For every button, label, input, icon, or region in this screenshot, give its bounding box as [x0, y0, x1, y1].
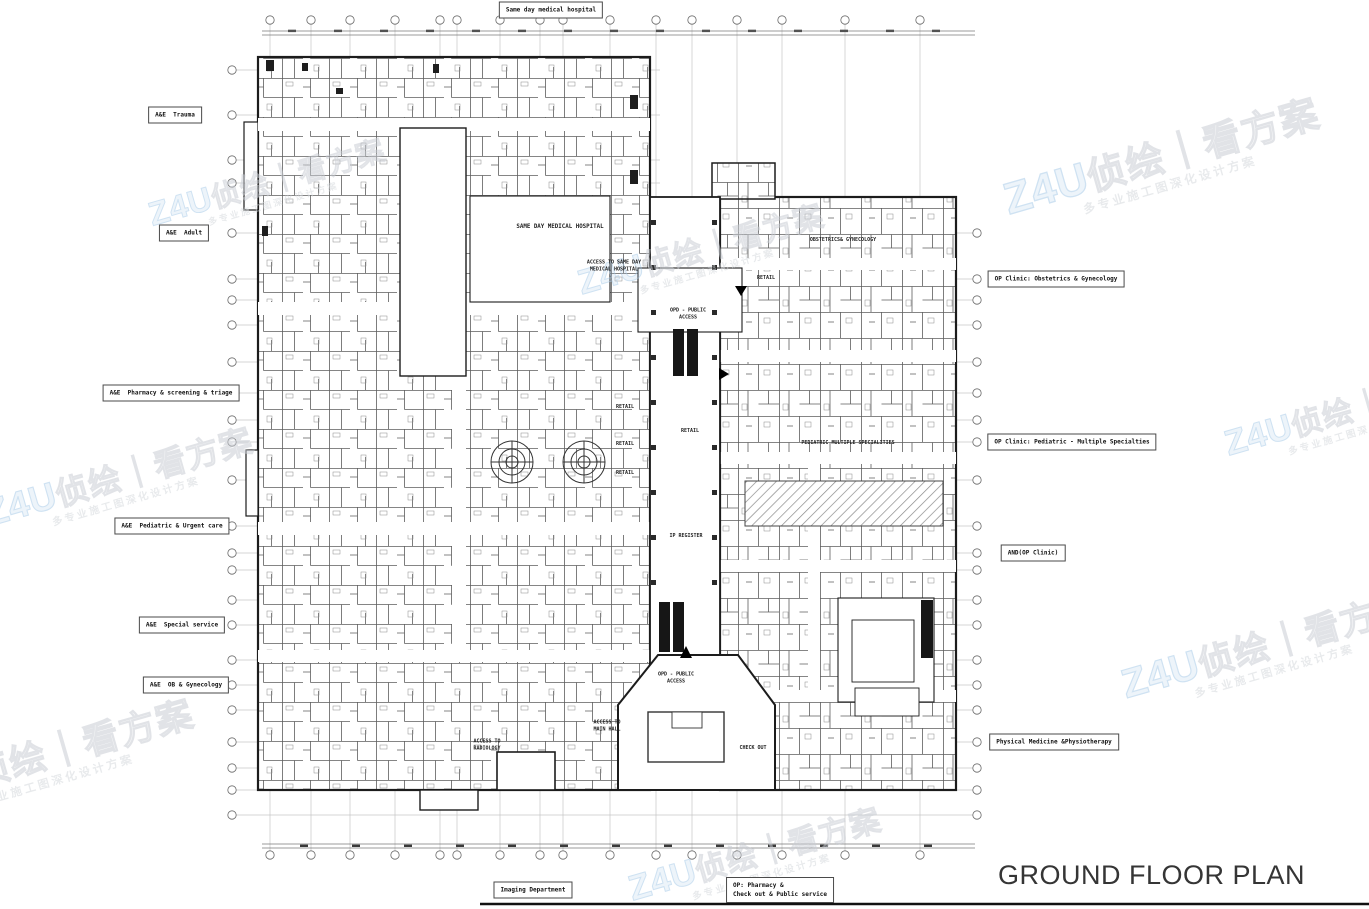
- floor-plan-page: Z4U侦绘｜看方案多专业施工图深化设计方案Z4U侦绘｜看方案多专业施工图深化设计…: [0, 0, 1369, 909]
- hatched-area: [745, 481, 943, 526]
- entrance-courtyard: [618, 655, 775, 790]
- floor-plan-drawing: [0, 0, 1369, 909]
- drawing-title: GROUND FLOOR PLAN: [998, 861, 1305, 891]
